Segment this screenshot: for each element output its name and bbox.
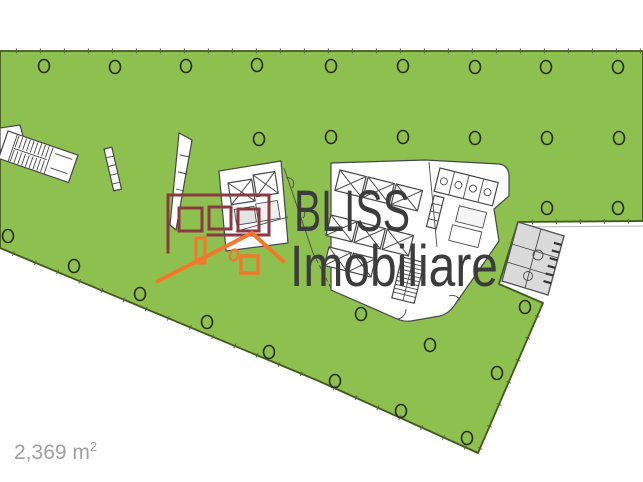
floorplan-image: BLISS Imobiliare 2,369 m2	[0, 0, 643, 482]
area-superscript: 2	[90, 439, 97, 454]
area-value: 2,369 m	[14, 441, 90, 464]
area-label: 2,369 m2	[14, 439, 97, 464]
grid-edge-secondary-line	[520, 226, 643, 227]
floorplan-canvas: BLISS Imobiliare 2,369 m2	[0, 0, 643, 482]
watermark-brand-line2: Imobiliare	[290, 234, 498, 299]
